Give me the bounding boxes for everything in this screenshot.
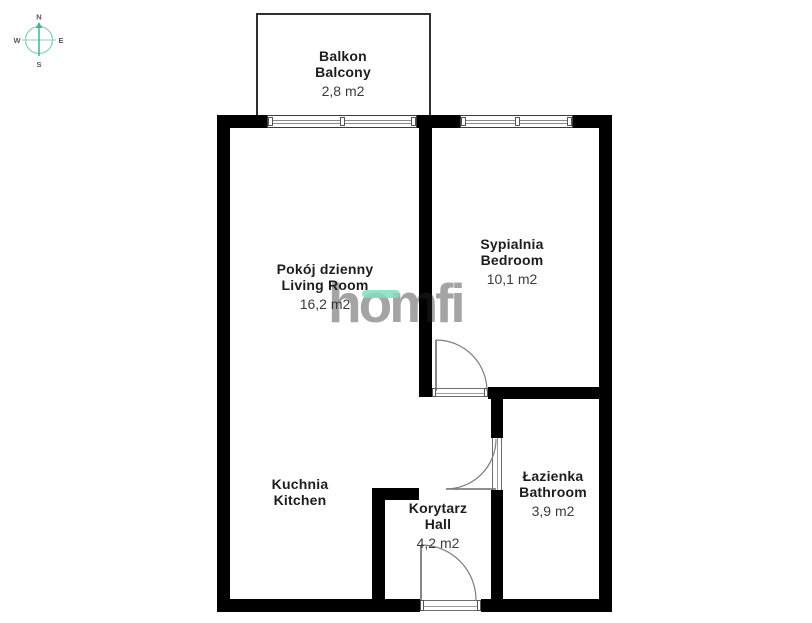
- wall-top-left-segment: [217, 115, 267, 128]
- room-label-bedroom: Sypialnia Bedroom 10,1 m2: [480, 237, 543, 287]
- balcony-area: 2,8 m2: [315, 84, 371, 99]
- kitchen-name-pl: Kuchnia: [272, 477, 329, 493]
- hall-area: 4,2 m2: [409, 536, 467, 551]
- living-room-name-pl: Pokój dzienny: [277, 262, 374, 278]
- balcony-name-pl: Balkon: [315, 49, 371, 65]
- compass-west-label: W: [13, 36, 21, 45]
- floor-plan: N E S W: [0, 0, 812, 623]
- bathroom-name-pl: Łazienka: [519, 469, 587, 485]
- wall-bedroom-bathroom: [488, 387, 612, 399]
- kitchen-name-en: Kitchen: [272, 493, 329, 509]
- wall-top-right-segment: [573, 115, 612, 128]
- compass-rose-icon: N E S W: [12, 11, 66, 69]
- living-room-area: 16,2 m2: [277, 297, 374, 312]
- wall-outer-left: [217, 115, 230, 612]
- wall-top-middle-segment: [417, 115, 460, 128]
- bedroom-name-pl: Sypialnia: [480, 237, 543, 253]
- hall-name-pl: Korytarz: [409, 501, 467, 517]
- living-room-name-en: Living Room: [277, 278, 374, 294]
- wall-bottom-left-segment: [217, 599, 420, 612]
- room-label-bathroom: Łazienka Bathroom 3,9 m2: [519, 469, 587, 519]
- hall-name-en: Hall: [409, 517, 467, 533]
- wall-kitchen-hall-vertical: [372, 488, 385, 599]
- bedroom-door-swing: [430, 334, 492, 398]
- room-label-hall: Korytarz Hall 4,2 m2: [409, 501, 467, 551]
- bedroom-area: 10,1 m2: [480, 272, 543, 287]
- wall-bottom-right-segment: [481, 599, 612, 612]
- balcony-name-en: Balcony: [315, 65, 371, 81]
- bedroom-window: [460, 115, 573, 128]
- living-room-balcony-window: [267, 115, 417, 128]
- room-label-balcony: Balkon Balcony 2,8 m2: [315, 49, 371, 99]
- compass-south-label: S: [36, 60, 41, 69]
- compass-north-label: N: [36, 13, 41, 22]
- compass-east-label: E: [58, 36, 63, 45]
- bathroom-name-en: Bathroom: [519, 485, 587, 501]
- wall-hall-bathroom-lower: [491, 490, 503, 599]
- bathroom-door-swing: [440, 433, 502, 495]
- bathroom-area: 3,9 m2: [519, 504, 587, 519]
- room-label-living-room: Pokój dzienny Living Room 16,2 m2: [277, 262, 374, 312]
- bedroom-name-en: Bedroom: [480, 253, 543, 269]
- room-label-kitchen: Kuchnia Kitchen: [272, 477, 329, 508]
- wall-outer-right: [599, 115, 612, 612]
